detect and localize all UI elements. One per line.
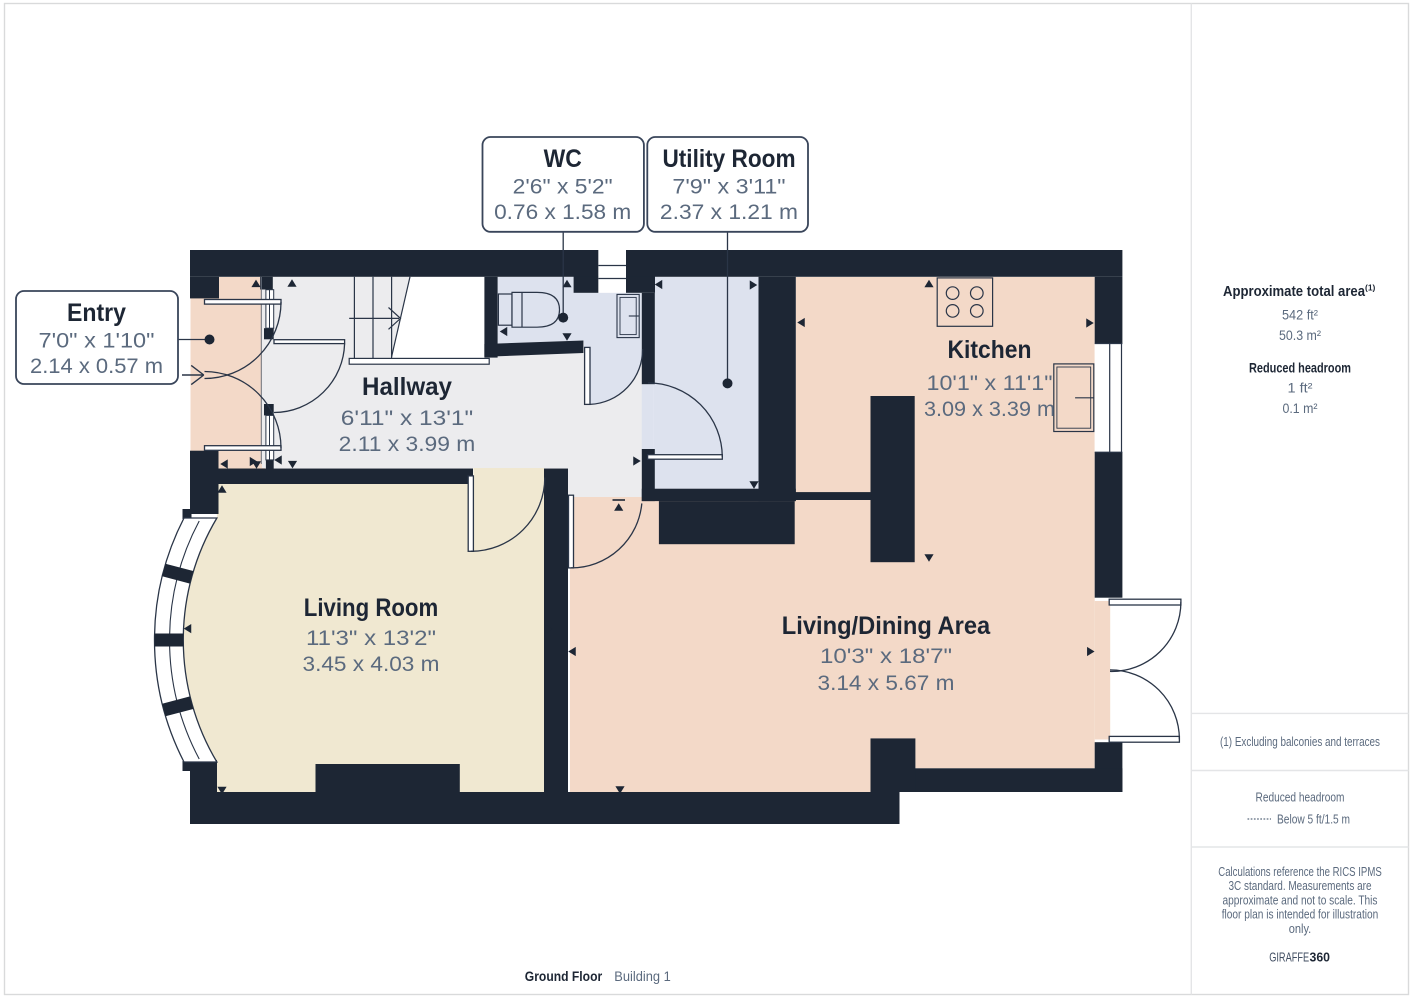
- svg-text:Kitchen: Kitchen: [948, 336, 1032, 364]
- svg-text:0.76 x 1.58 m: 0.76 x 1.58 m: [494, 201, 631, 224]
- svg-text:50.3 m²: 50.3 m²: [1279, 328, 1321, 343]
- svg-text:GIRAFFE: GIRAFFE: [1269, 949, 1309, 964]
- svg-text:(1) Excluding balconies and te: (1) Excluding balconies and terraces: [1220, 735, 1380, 749]
- svg-text:3.09 x 3.39 m: 3.09 x 3.39 m: [924, 398, 1055, 421]
- svg-text:floor plan is intended for ill: floor plan is intended for illustration: [1222, 908, 1379, 922]
- svg-text:3C standard. Measurements are: 3C standard. Measurements are: [1229, 879, 1372, 893]
- svg-text:Reduced headroom: Reduced headroom: [1249, 360, 1351, 376]
- svg-text:Below 5 ft/1.5 m: Below 5 ft/1.5 m: [1277, 813, 1350, 827]
- svg-text:Approximate total area: Approximate total area: [1223, 284, 1366, 300]
- svg-text:Reduced headroom: Reduced headroom: [1256, 791, 1345, 805]
- svg-text:3.45 x 4.03 m: 3.45 x 4.03 m: [303, 653, 440, 676]
- svg-text:Living Room: Living Room: [304, 594, 439, 622]
- svg-text:3.14 x 5.67 m: 3.14 x 5.67 m: [818, 672, 955, 695]
- svg-text:Hallway: Hallway: [362, 373, 452, 401]
- svg-text:1 ft²: 1 ft²: [1288, 381, 1314, 396]
- svg-text:2'6" x 5'2": 2'6" x 5'2": [513, 176, 613, 199]
- svg-text:10'3" x 18'7": 10'3" x 18'7": [820, 645, 952, 668]
- svg-text:Building 1: Building 1: [614, 968, 671, 984]
- svg-text:Ground Floor: Ground Floor: [525, 968, 603, 984]
- svg-text:0.1 m²: 0.1 m²: [1283, 401, 1318, 416]
- svg-text:7'9" x 3'11": 7'9" x 3'11": [672, 176, 785, 199]
- svg-text:only.: only.: [1289, 922, 1312, 936]
- svg-text:11'3" x 13'2": 11'3" x 13'2": [306, 627, 436, 650]
- svg-text:Calculations reference the RIC: Calculations reference the RICS IPMS: [1218, 865, 1382, 879]
- svg-text:(1): (1): [1365, 283, 1376, 293]
- svg-text:Living/Dining Area: Living/Dining Area: [782, 612, 991, 640]
- svg-text:542 ft²: 542 ft²: [1282, 308, 1318, 323]
- svg-text:Entry: Entry: [67, 299, 126, 327]
- svg-text:Utility Room: Utility Room: [662, 145, 795, 173]
- svg-text:approximate and not to scale.: approximate and not to scale. This: [1223, 893, 1378, 907]
- svg-text:2.37 x 1.21 m: 2.37 x 1.21 m: [660, 201, 798, 224]
- svg-text:6'11" x 13'1": 6'11" x 13'1": [341, 407, 473, 430]
- svg-text:2.14 x 0.57 m: 2.14 x 0.57 m: [30, 355, 163, 378]
- svg-text:10'1" x 11'1": 10'1" x 11'1": [927, 372, 1053, 395]
- svg-text:360: 360: [1310, 949, 1331, 964]
- svg-text:7'0" x 1'10": 7'0" x 1'10": [39, 330, 155, 353]
- svg-text:WC: WC: [544, 145, 582, 173]
- svg-text:2.11 x 3.99 m: 2.11 x 3.99 m: [339, 433, 476, 456]
